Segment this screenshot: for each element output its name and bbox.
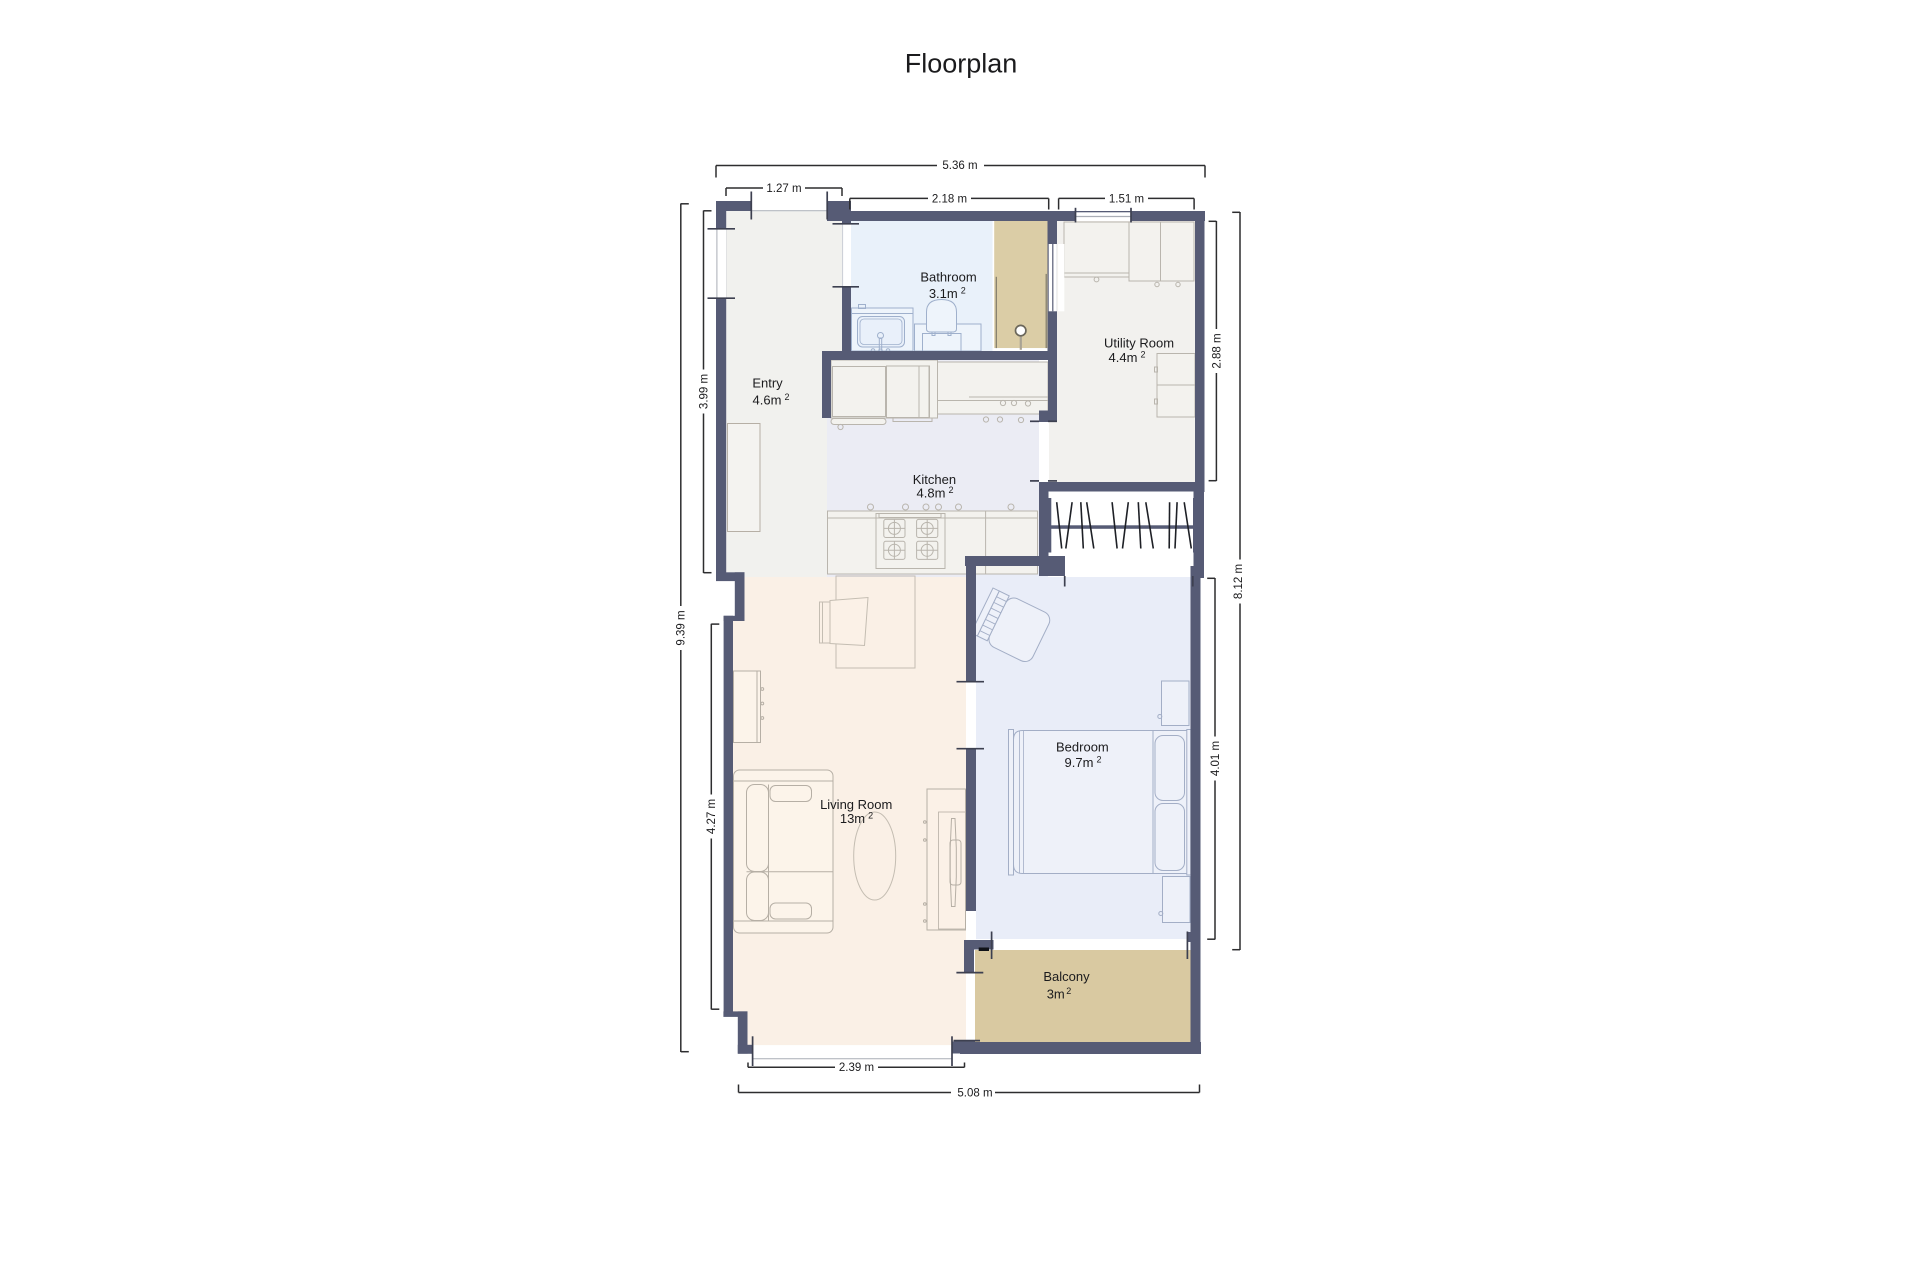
svg-text:2.39 m: 2.39 m <box>839 1062 874 1074</box>
svg-text:4.01 m: 4.01 m <box>1210 741 1222 776</box>
svg-text:9.39 m: 9.39 m <box>676 610 688 645</box>
svg-text:5.08 m: 5.08 m <box>957 1087 992 1099</box>
svg-text:Bedroom: Bedroom <box>1056 739 1109 754</box>
svg-text:5.36 m: 5.36 m <box>942 160 977 172</box>
svg-text:Balcony: Balcony <box>1043 969 1090 984</box>
svg-text:Floorplan: Floorplan <box>905 48 1018 78</box>
svg-text:Entry: Entry <box>752 375 783 390</box>
svg-text:4.27 m: 4.27 m <box>706 799 718 834</box>
svg-text:Bathroom: Bathroom <box>920 270 976 285</box>
svg-text:1.27 m: 1.27 m <box>766 183 801 195</box>
svg-text:Utility Room: Utility Room <box>1104 336 1174 351</box>
svg-text:2.88 m: 2.88 m <box>1211 333 1223 368</box>
svg-text:1.51 m: 1.51 m <box>1109 193 1144 205</box>
svg-text:8.12 m: 8.12 m <box>1233 564 1245 599</box>
svg-text:Living Room: Living Room <box>820 797 892 812</box>
svg-text:2.18 m: 2.18 m <box>932 193 967 205</box>
svg-text:3.99 m: 3.99 m <box>698 374 710 409</box>
